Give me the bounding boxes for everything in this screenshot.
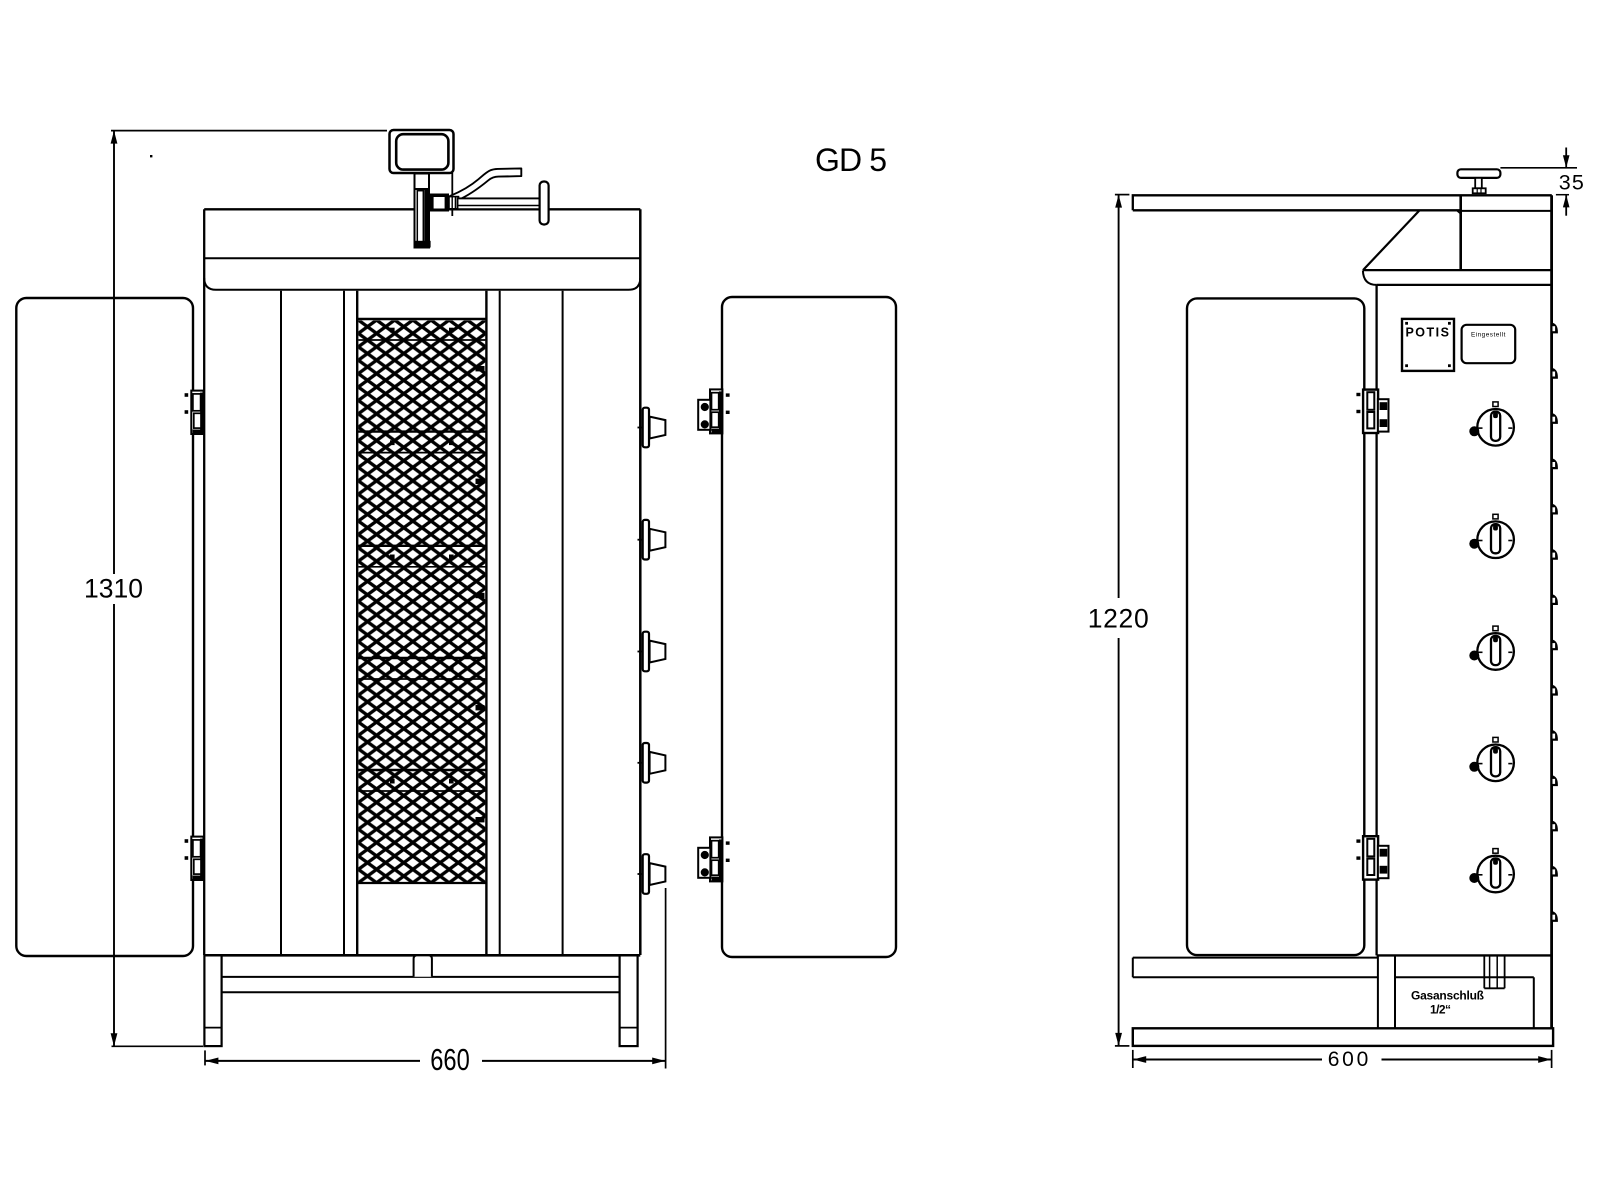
svg-text:660: 660: [430, 1042, 470, 1077]
svg-text:1/2“: 1/2“: [1430, 1003, 1451, 1017]
svg-text:1310: 1310: [84, 574, 143, 604]
svg-text:POTIS: POTIS: [1405, 325, 1451, 339]
svg-text:1220: 1220: [1088, 604, 1149, 634]
svg-text:600: 600: [1328, 1048, 1374, 1071]
svg-text:GD 5: GD 5: [815, 142, 887, 178]
svg-text:Eingestellt: Eingestellt: [1471, 331, 1506, 338]
svg-text:35: 35: [1559, 171, 1584, 195]
svg-text:Gasanschluß: Gasanschluß: [1411, 989, 1484, 1003]
